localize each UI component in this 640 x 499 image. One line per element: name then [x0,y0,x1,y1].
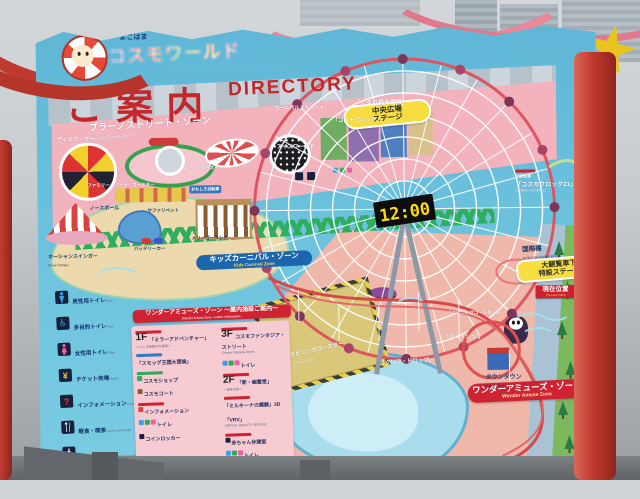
legend-label-en: Foods & Beverage [106,428,131,433]
gururi-label: 「ぐるり森大冒険」 [354,97,408,107]
carousel-ride [155,146,185,176]
disk-o-label: ディスク・オー [57,135,95,143]
court-icon [138,389,143,394]
cosmopanic-label: 「コスモパニック」 [332,115,382,124]
indoor-item: コインロッカー [139,431,221,444]
facility-label: コスモコート [144,391,174,398]
legend-label: 女性用トイレ [75,350,108,358]
fork-knife-icon [61,420,75,434]
indoor-panel: 1F「ミラーアドベンチャー」～ふしぎ迷路の大冒険～ 「スモッグ王国大冒険」 コス… [131,320,294,470]
indoor-item: コスモショップ [137,369,219,386]
safari-pet-label: サファリペット [148,208,180,214]
legend-item-mens-toilet: 男性用トイレToilet [55,286,166,309]
banana-coaster-car [149,138,179,146]
facility-label: 「ミルキーナの魔鏡」3D [224,402,281,410]
you-are-here-badge: 現在位置 You are here [535,285,575,298]
floor-number: 2F [223,374,235,385]
indoor-item: 3Fコスモファンタジア・ストリートCosmo Fantasia Street [221,325,286,356]
facility-sub: VIRTUAL REALITY VEHICLE [225,421,289,429]
battery-car-label: バッテリーカー [134,246,166,252]
shop-icon [137,376,142,381]
locker-icon [139,434,144,439]
legend-label-en: Tickets [109,376,119,380]
toilet-icon [222,360,227,365]
facility-sub: ～ふしぎ迷路の大冒険～ [136,342,218,351]
red-frame-pole-right [574,52,616,480]
indoor-item: インフォメーション [138,400,220,417]
indoor-item: トイレ [222,358,287,370]
baby-icon [225,437,230,442]
ocean-swinger-label: オーシャンスインガー Ocean Swinger [48,245,98,268]
information-icon: ? [60,394,74,408]
down-town-en: Down Town [486,384,522,388]
clock-display: 12:00 [373,194,436,229]
toilet-icon [228,360,233,365]
legend-label-en: Baggage Locker [119,479,141,484]
down-town-label: タウンタウン Down Town [485,366,521,388]
indoor-item: 「ミルキーナの魔鏡」3D [224,394,289,410]
toilet-icon [139,420,144,425]
toilet-icon [238,450,243,455]
legend-label: 男性用トイレ [72,298,105,306]
bridge-jp: 国際橋 [522,245,542,253]
pine-tree [564,435,574,453]
facility-label: トイレ [240,362,255,369]
ferris-name-jp: 「コスモクロック21」 [515,179,576,189]
indoor-item: 「VRV」VIRTUAL REALITY VEHICLE [224,412,289,429]
facility-label: トイレ [157,422,172,429]
facility-label: インフォメーション [144,408,189,416]
carnival-street-label: カーニバルストリート [274,104,324,112]
indoor-item: 赤ちゃん休憩室 [225,431,290,447]
category-tag-bar [515,169,535,172]
battery-car-ride [154,238,163,244]
ocean-swinger-en: Ocean Swinger [48,263,98,268]
floor-number: 3F [221,328,233,339]
womens-toilet-icon [57,343,71,357]
down-town-jp: タウンタウン [486,375,522,381]
sign-leg [300,460,330,480]
legend-label: 軽食・喫茶 [78,428,106,435]
legend-label-en: Toilet [108,350,115,354]
facility-label: コスモショップ [143,377,178,384]
facility-sub: Cosmo Fantasia Street [222,348,286,356]
facility-label: 「スモッグ王国大冒険」 [136,359,191,367]
indoor-item: コスモコート [138,386,220,399]
battery-car-ride [142,238,151,244]
indoor-item: トイレ [139,417,221,430]
indoor-item: 1F「ミラーアドベンチャー」～ふしぎ迷路の大冒険～ [135,328,217,350]
floor-number: 1F [135,332,147,343]
coaster2-label: 「スピニングコースター2」 [447,310,503,317]
ticket-yen-icon: ¥ [59,369,73,383]
legend-label: チケット売場 [76,376,109,384]
indoor-item: 2F「新・幽霊堂」～恐怖の旅～ [223,371,288,392]
cosmo-clock-label: 大観覧車 「コスモクロック21」 COSMO CLOCK 21 [515,169,576,193]
facility-label: 赤ちゃん休憩室 [231,439,266,446]
sign-leg [92,452,118,480]
fun-cycle-label: おもしろ自転車 [189,185,221,193]
vanish-label: 「バニッシュ!」 [443,332,483,340]
north-pole-label: ノースポール [89,204,119,211]
indoor-panel-left-column: 1F「ミラーアドベンチャー」～ふしぎ迷路の大冒険～ 「スモッグ王国大冒険」 コス… [135,328,222,465]
toilet-icon [234,360,239,365]
legend-label: インフォメーション [77,401,126,409]
wheelchair-icon: ♿ [56,317,70,331]
mens-toilet-icon [55,291,69,305]
banana-coaster-label: ファミリー・バナナ・コースター [87,182,154,189]
ocean-swinger-jp: オーシャンスインガー [48,254,98,261]
ice-world-label: アイスワールド [277,142,315,150]
facility-sub: ～恐怖の旅～ [223,385,287,393]
super-planet-label: スーパープラネット [183,165,223,171]
legend-label-en: Toilet [105,299,112,303]
kiddie-train [115,188,187,203]
info-icon [138,407,143,412]
you-are-here-en: You are here [536,293,576,297]
merry-go-round-label: メリーゴーランド [192,235,228,241]
legend-label: 多目的トイレ [74,324,107,332]
pine-tree [558,401,568,419]
indoor-panel-right-column: 3Fコスモファンタジア・ストリートCosmo Fantasia Street ト… [221,325,290,461]
toilet-icon [145,420,150,425]
facility-label: 「新・幽霊堂」 [237,379,272,386]
toilet-icon [151,420,156,425]
bridge-label: 国際橋 KOKUSAI-BASHI Bridge [521,236,561,260]
indoor-item: 「スモッグ王国大冒険」 [136,351,218,368]
ferris-name-en: COSMO CLOCK 21 [515,188,576,193]
red-frame-pole-left [0,140,12,480]
legend-label-en: Toilet [107,324,114,328]
legend-label: コインロッカー [81,479,120,487]
facility-label: コインロッカー [145,435,180,442]
